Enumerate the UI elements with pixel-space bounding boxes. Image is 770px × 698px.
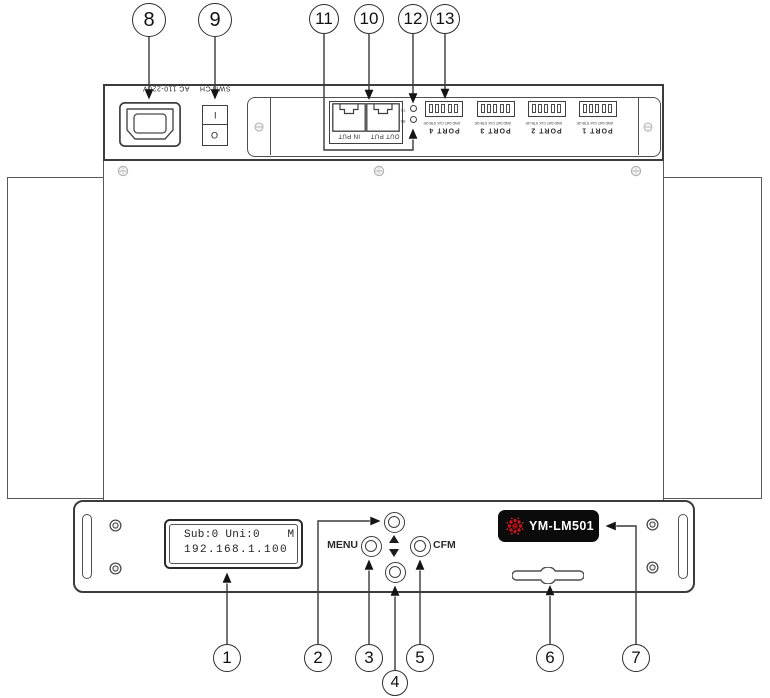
port3-pin-labels: GND DAT CLK STB OE (479, 120, 511, 124)
port3-terminal-block (477, 101, 515, 117)
front-panel: Sub:0 Uni:0 M 192.168.1.100 MENU CFM (73, 500, 695, 593)
device-diagram: AC 110-220V SWITCH I O (0, 0, 770, 698)
panel-screw (109, 519, 122, 532)
panel-screw (646, 561, 659, 574)
callout-13-badge: 13 (430, 4, 460, 34)
switch-off-mark: O (211, 130, 218, 140)
module-divider-left (270, 98, 271, 155)
port1-label: PORT 1 (569, 126, 625, 134)
port4-label: PORT 4 (416, 126, 472, 134)
callout-3-badge: 3 (355, 644, 383, 672)
callout-6-badge: 6 (536, 644, 564, 672)
chassis-top-cover (103, 161, 664, 500)
rx-led (410, 116, 417, 123)
up-arrow-icon (389, 535, 399, 543)
port4-pin-labels: GND DAT CLK STB OE (427, 120, 459, 124)
rj45-out-label: OUT PUT (367, 132, 403, 139)
callout-9-badge: 9 (198, 3, 232, 37)
tx-led-label: TX (400, 107, 407, 111)
down-button (385, 562, 406, 583)
brand-badge: YM-LM501 (498, 510, 599, 542)
cover-screw (373, 165, 385, 177)
cover-screw (117, 165, 129, 177)
rx-led-label: RX (400, 118, 407, 122)
port2-terminal-block (528, 101, 566, 117)
panel-screw (109, 562, 122, 575)
ac-power-inlet (119, 102, 181, 147)
model-label: YM-LM501 (529, 510, 594, 542)
cover-screw (630, 165, 642, 177)
rear-panel: AC 110-220V SWITCH I O (103, 84, 664, 161)
rj45-in-label: IN PUT (331, 132, 367, 139)
callout-1-badge: 1 (213, 644, 241, 672)
power-switch-label: SWITCH (185, 84, 245, 92)
handle-slot (512, 567, 584, 584)
menu-button (361, 536, 382, 557)
rj45-block: IN PUT OUT PUT (329, 101, 403, 144)
rj45-in-jack (332, 103, 366, 132)
power-switch: I O (202, 105, 228, 146)
module-screw (643, 122, 653, 132)
callout-11-badge: 11 (309, 4, 339, 34)
callout-5-badge: 5 (406, 644, 434, 672)
module-screw (254, 122, 264, 132)
lcd-line1: Sub:0 Uni:0 M (184, 529, 297, 541)
brand-logo-icon (505, 516, 525, 536)
rack-slot-left (82, 514, 92, 579)
callout-8-badge: 8 (132, 3, 166, 37)
module-divider-right (638, 98, 639, 155)
callout-7-badge: 7 (622, 644, 650, 672)
io-module-plate: IN PUT OUT PUT TX RX GND DAT CLK STB OE (247, 97, 661, 157)
rj45-out-jack (366, 103, 400, 132)
panel-screw (646, 518, 659, 531)
cfm-button (410, 536, 431, 557)
callout-4-badge: 4 (382, 670, 408, 696)
tx-led (410, 105, 417, 112)
port2-pin-labels: GND DAT CLK STB OE (530, 120, 562, 124)
callout-10-badge: 10 (354, 4, 384, 34)
callout-2-badge: 2 (304, 644, 332, 672)
port3-label: PORT 3 (467, 126, 523, 134)
callout-12-badge: 12 (398, 4, 428, 34)
cfm-label: CFM (433, 540, 465, 552)
port4-terminal-block (425, 101, 463, 117)
lcd-line2: 192.168.1.100 (184, 544, 297, 556)
port1-terminal-block (579, 101, 617, 117)
rack-slot-right (678, 514, 688, 579)
port1-pin-labels: GND DAT CLK STB OE (581, 120, 613, 124)
switch-on-mark: I (214, 110, 217, 120)
down-arrow-icon (389, 549, 399, 557)
port2-label: PORT 2 (518, 126, 574, 134)
menu-label: MENU (321, 540, 358, 552)
lcd-display: Sub:0 Uni:0 M 192.168.1.100 (164, 519, 303, 569)
up-button (384, 512, 405, 533)
